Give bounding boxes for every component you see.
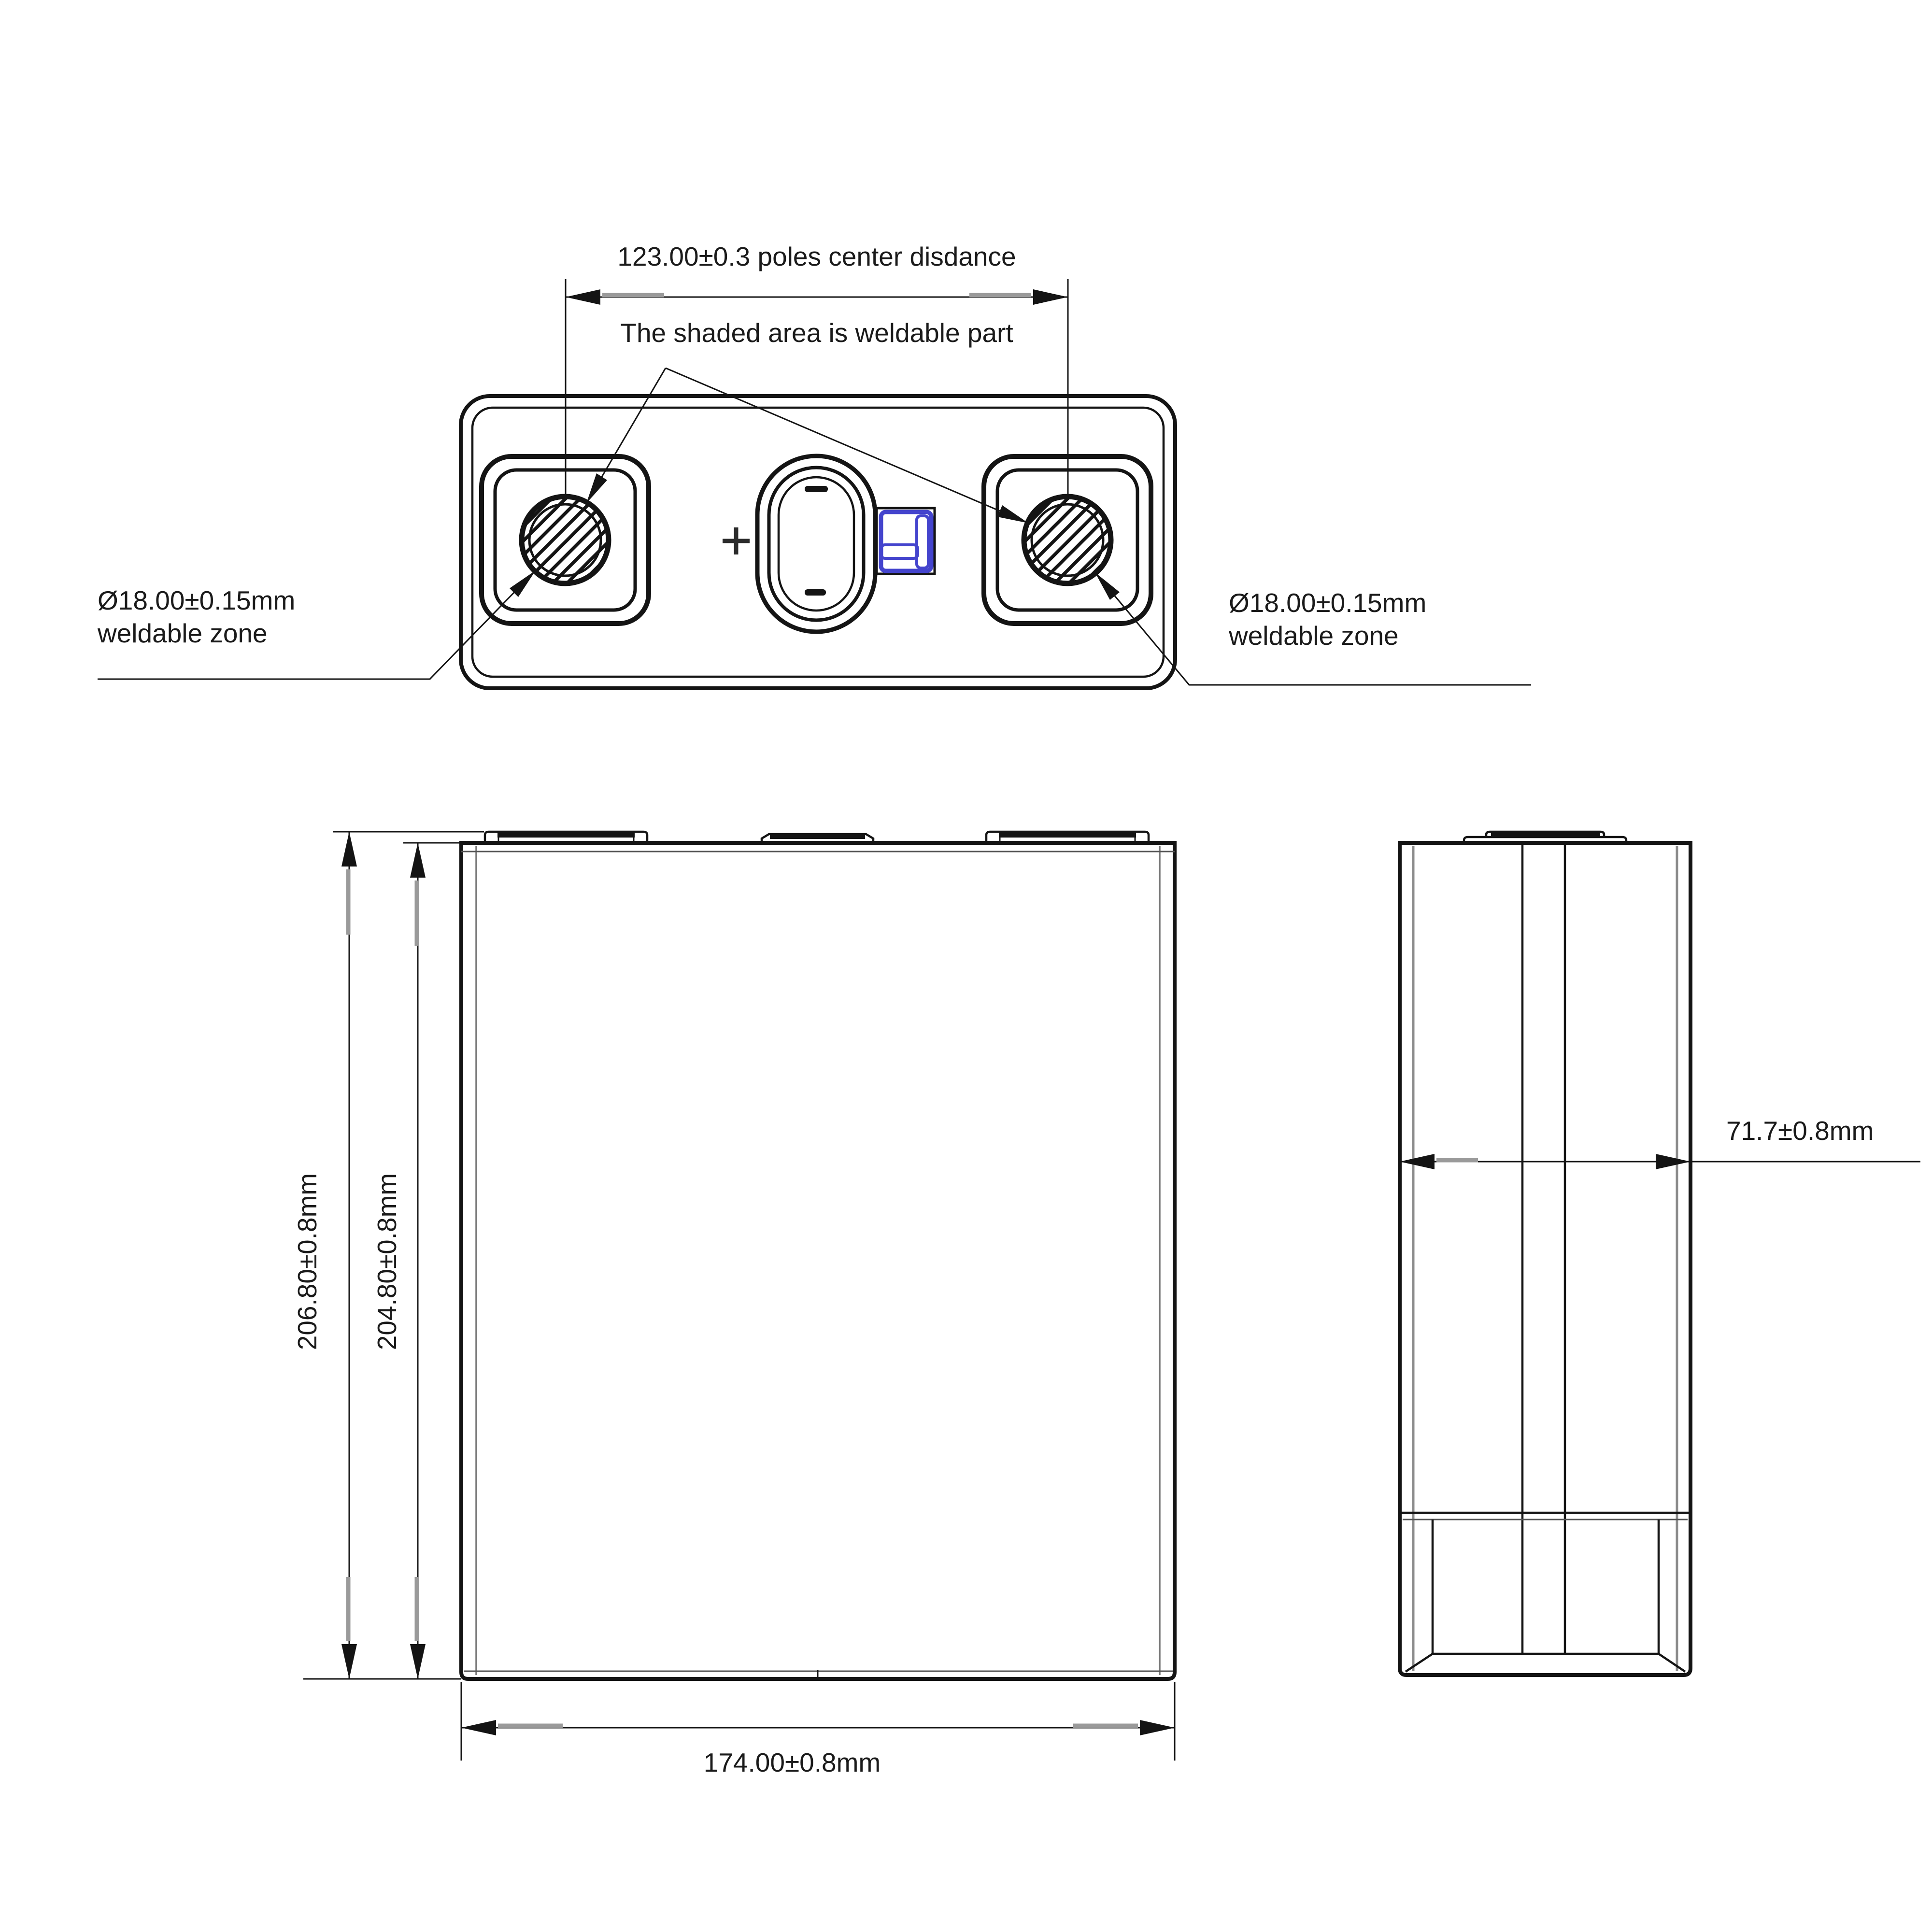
right-zone-label-line1: Ø18.00±0.15mm [1229,588,1426,618]
drawing-svg: 123.00±0.3 poles center disdance The sha… [0,0,1932,1932]
left-weldable-callout: Ø18.00±0.15mm weldable zone [97,570,536,679]
leader-arrow-right [997,505,1028,523]
left-zone-label-line1: Ø18.00±0.15mm [98,585,295,615]
width-label: 174.00±0.8mm [704,1747,881,1777]
side-bottom-tray [1406,1520,1685,1672]
overall-height-label: 206.80±0.8mm [292,1173,322,1350]
right-weldable-zone-circle [1024,497,1111,583]
fill-port-connector [877,508,935,574]
weldable-note-label: The shaded area is weldable part [620,318,1013,348]
front-view: 206.80±0.8mm 204.80±0.8mm 174.00±0.8mm [292,832,1175,1777]
thickness-label: 71.7±0.8mm [1726,1116,1874,1146]
thickness-dimension: 71.7±0.8mm [1400,1116,1920,1169]
front-body-outline [461,843,1175,1679]
side-view: 71.7±0.8mm [1400,832,1920,1675]
arrowhead-top [410,843,426,878]
case-height-dimension: 204.80±0.8mm [372,843,461,1679]
leader-arrow-left [586,473,607,503]
right-zone-leader-arrow [1095,572,1120,600]
arrowhead-left [1400,1154,1435,1169]
vent-bottom-dash [805,589,826,596]
arrowhead-bottom [341,1644,357,1679]
arrowhead-top [341,832,357,867]
arrowhead-right [1656,1154,1690,1169]
arrowhead-left [566,289,600,305]
battery-cell-drawing: 123.00±0.3 poles center disdance The sha… [0,0,1932,1932]
side-body-outline [1400,843,1690,1675]
vent-top-dash [805,486,828,492]
right-zone-label-line2: weldable zone [1228,621,1399,651]
arrowhead-left [461,1720,496,1735]
left-weldable-zone-circle [522,497,609,583]
arrowhead-right [1140,1720,1175,1735]
plus-polarity-icon [723,527,750,554]
poles-distance-label: 123.00±0.3 poles center disdance [617,241,1016,271]
arrowhead-bottom [410,1644,426,1679]
case-height-label: 204.80±0.8mm [372,1173,402,1350]
arrowhead-right [1033,289,1068,305]
top-view: 123.00±0.3 poles center disdance The sha… [97,241,1531,688]
left-zone-label-line2: weldable zone [97,618,268,648]
vent-oval [757,456,875,632]
width-dimension: 174.00±0.8mm [461,1682,1175,1777]
